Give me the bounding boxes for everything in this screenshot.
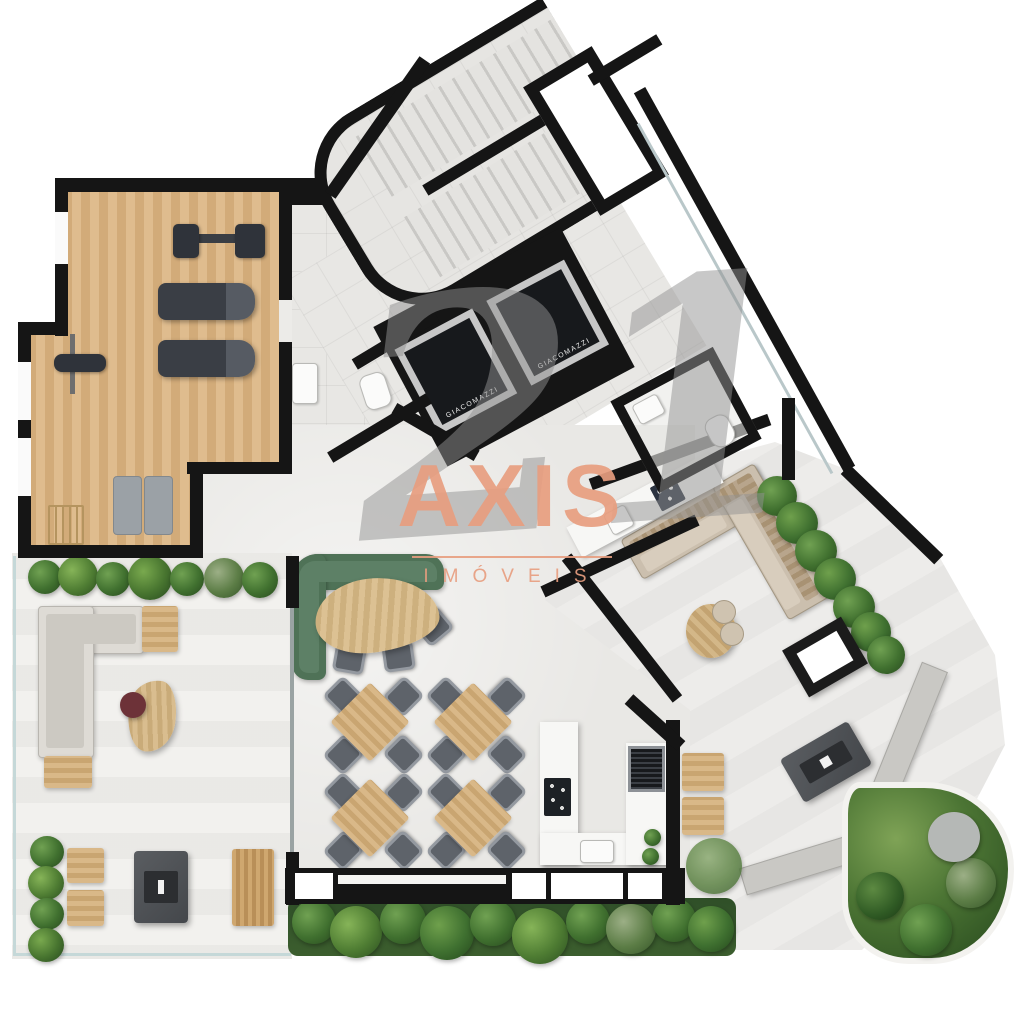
fire-pit-table-left bbox=[134, 851, 188, 923]
stepping-stone bbox=[928, 812, 980, 862]
gym-door-right bbox=[279, 300, 292, 342]
kitchen-cooktop bbox=[544, 778, 571, 816]
sofa-end-table-bottom bbox=[44, 756, 92, 788]
gym-wall-bottom bbox=[18, 545, 203, 558]
sofa-end-table-top bbox=[142, 606, 178, 652]
bbq-side-table-2 bbox=[682, 797, 724, 835]
gym-window-left-lower-2 bbox=[18, 438, 31, 496]
bbq-side-table-1 bbox=[682, 753, 724, 791]
gym-window-left-lower bbox=[18, 362, 31, 420]
south-window-3 bbox=[551, 873, 623, 899]
wood-daybed bbox=[232, 849, 274, 926]
elevator-cab-2-label: GIACOMAZZI bbox=[537, 337, 592, 371]
treadmill-2 bbox=[158, 340, 255, 377]
edge-bush-3 bbox=[30, 898, 64, 930]
glass-railing-left bbox=[13, 556, 16, 956]
exercise-mat-1 bbox=[113, 476, 142, 535]
corner-garden-bed bbox=[842, 782, 1014, 964]
gym-wall-inner-step-v bbox=[190, 462, 203, 557]
hall-basin bbox=[292, 363, 318, 404]
south-planter-strip bbox=[288, 898, 736, 956]
south-window-4 bbox=[628, 873, 662, 899]
bbq-table-2 bbox=[67, 890, 104, 926]
coffee-table-accent bbox=[120, 692, 146, 718]
corridor-wall-east bbox=[782, 398, 795, 480]
wc-toilet bbox=[701, 411, 739, 451]
kitchen-plant-2 bbox=[642, 848, 659, 865]
elevator-cab-1-label: GIACOMAZZI bbox=[445, 386, 500, 420]
kitchen-sink bbox=[580, 840, 614, 863]
terrace-tree bbox=[686, 838, 742, 894]
kitchen-grill bbox=[628, 746, 665, 792]
wall-bars bbox=[48, 505, 84, 545]
pouf-2 bbox=[720, 622, 744, 646]
gym-window-left-upper bbox=[55, 212, 68, 264]
floor-plan-canvas: GIACOMAZZI GIACOMAZZI bbox=[0, 0, 1024, 1024]
lounge-west-wall-stub-top bbox=[286, 556, 299, 608]
south-wall-band bbox=[285, 868, 685, 904]
wc-sink bbox=[631, 393, 666, 426]
gym-wall-top bbox=[55, 178, 293, 192]
edge-bush-4 bbox=[28, 928, 64, 962]
hall-corner-wall bbox=[288, 178, 324, 205]
treadmill-1 bbox=[158, 283, 255, 320]
south-window-1 bbox=[295, 873, 333, 899]
south-window-strip bbox=[338, 875, 506, 884]
bench-press bbox=[52, 334, 108, 394]
cable-machine bbox=[173, 224, 265, 258]
south-window-2 bbox=[512, 873, 546, 899]
hedge-bush-7 bbox=[867, 636, 905, 674]
planter-strip-gym-south bbox=[28, 556, 290, 600]
edge-bush-1 bbox=[30, 836, 64, 868]
pouf-1 bbox=[712, 600, 736, 624]
edge-bush-2 bbox=[28, 866, 64, 900]
exercise-mat-2 bbox=[144, 476, 173, 535]
counter-sink bbox=[603, 504, 635, 536]
bbq-table-1 bbox=[67, 848, 104, 883]
kitchen-plant-1 bbox=[644, 829, 661, 846]
